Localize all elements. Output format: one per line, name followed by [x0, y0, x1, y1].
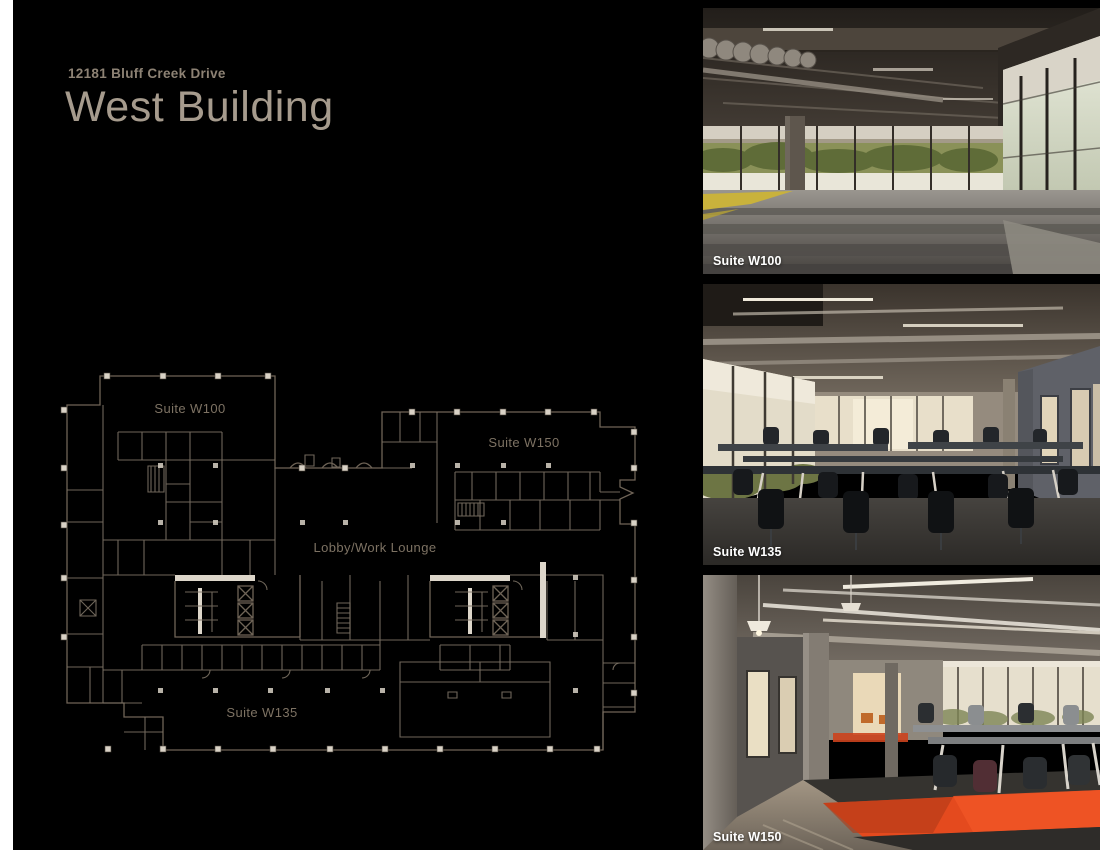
floor-plan-label-suite-w100: Suite W100 — [154, 401, 225, 416]
photo-suite-w150: Suite W150 — [703, 575, 1100, 850]
floor-plan-label-suite-w150: Suite W150 — [488, 435, 559, 450]
photo-caption-w135: Suite W135 — [713, 545, 782, 559]
floor-plan-label-lobby: Lobby/Work Lounge — [314, 540, 437, 555]
core-walls — [175, 562, 546, 638]
header: 12181 Bluff Creek Drive West Building — [68, 66, 334, 132]
page-left-margin — [0, 0, 13, 850]
photo-caption-w150: Suite W150 — [713, 830, 782, 844]
address-label: 12181 Bluff Creek Drive — [68, 66, 334, 81]
photo-caption-w100: Suite W100 — [713, 254, 782, 268]
column-markers — [61, 373, 637, 752]
floor-plan: Suite W100 Suite W150 Lobby/Work Lounge … — [60, 372, 660, 762]
photo-suite-w100: Suite W100 — [703, 8, 1100, 274]
photo-suite-w100-image — [703, 8, 1100, 274]
photo-suite-w135-image — [703, 284, 1100, 565]
photo-suite-w135: Suite W135 — [703, 284, 1100, 565]
floor-plan-label-suite-w135: Suite W135 — [226, 705, 297, 720]
photo-suite-w150-image — [703, 575, 1100, 850]
building-title: West Building — [65, 83, 334, 132]
photo-column: Suite W100 — [703, 0, 1100, 850]
floor-plan-drawing: Suite W100 Suite W150 Lobby/Work Lounge … — [60, 372, 660, 762]
